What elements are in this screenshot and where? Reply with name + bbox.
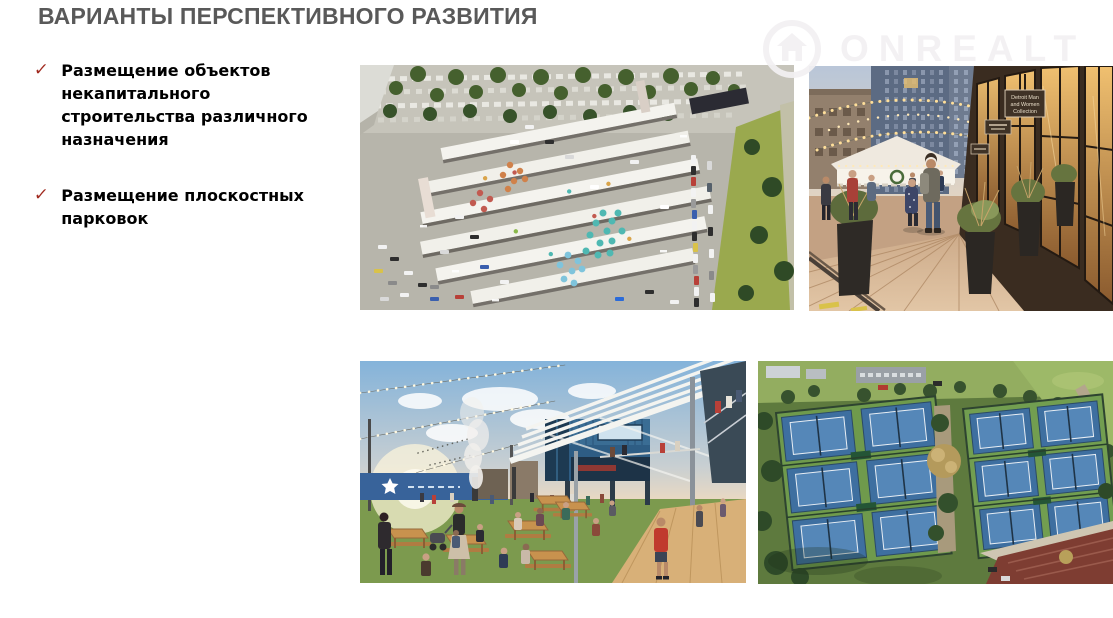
bullet-item: ✓ Размещение плоскостных парковок xyxy=(34,184,344,230)
street-walkway-illustration: Detroit Man and Women Collection xyxy=(809,66,1113,311)
court-cluster-left xyxy=(776,396,952,570)
slide: ВАРИАНТЫ ПЕРСПЕКТИВНОГО РАЗВИТИЯ ✓ Разме… xyxy=(0,0,1113,618)
svg-text:and Women: and Women xyxy=(1011,102,1040,108)
checkmark-icon: ✓ xyxy=(33,184,50,207)
bullet-item: ✓ Размещение объектов некапитального стр… xyxy=(34,59,344,151)
photo-street-walkway: Detroit Man and Women Collection xyxy=(809,66,1113,311)
svg-text:Detroit Man: Detroit Man xyxy=(1011,95,1039,101)
photo-tennis-courts xyxy=(758,361,1113,584)
slide-title: ВАРИАНТЫ ПЕРСПЕКТИВНОГО РАЗВИТИЯ xyxy=(38,3,538,30)
food-court-illustration xyxy=(360,361,746,583)
tennis-courts-illustration xyxy=(758,361,1113,584)
photo-food-court xyxy=(360,361,746,583)
market-aerial-illustration xyxy=(360,65,794,310)
bullet-text: Размещение объектов некапитального строи… xyxy=(61,59,333,151)
bullet-text: Размещение плоскостных парковок xyxy=(61,184,333,230)
svg-text:Collection: Collection xyxy=(1013,109,1037,115)
checkmark-icon: ✓ xyxy=(33,59,50,82)
bullet-list: ✓ Размещение объектов некапитального стр… xyxy=(34,59,344,230)
photo-market-aerial xyxy=(360,65,794,310)
